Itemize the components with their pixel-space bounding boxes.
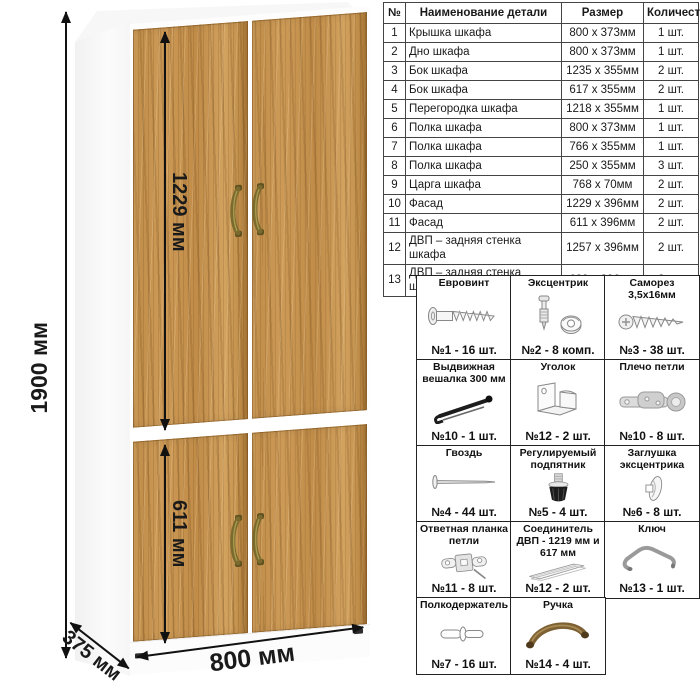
part-name: Перегородка шкафа xyxy=(406,100,562,119)
hardware-item-ugolok: Уголок №12 - 2 шт. xyxy=(510,359,606,447)
part-num: 13 xyxy=(384,264,406,296)
hardware-item-count: №1 - 16 шт. xyxy=(431,343,497,360)
hardware-item-count: №6 - 8 шт. xyxy=(623,505,682,522)
hardware-item-handle: Ручка №14 - 4 шт. xyxy=(510,597,606,675)
part-size: 800 х 373мм xyxy=(562,24,644,43)
col-header-num: № xyxy=(384,3,406,24)
hardware-item-hanger: Выдвижная вешалка 300 мм №10 - 1 шт. xyxy=(416,359,512,447)
part-name: Полка шкафа xyxy=(406,157,562,176)
hardware-item-foot: Регулируемый подпятник №5 - 4 шт. xyxy=(510,445,606,523)
hardware-item-shelf-pin: Полкодержатель №7 - 16 шт. xyxy=(416,597,512,675)
hardware-item-count: №10 - 8 шт. xyxy=(619,429,685,446)
adjustable-foot-icon xyxy=(523,472,593,505)
hardware-item-title: Эксцентрик xyxy=(527,276,589,290)
part-size: 1257 х 396мм xyxy=(562,233,644,265)
hardware-item-count: №5 - 4 шт. xyxy=(529,505,588,522)
hardware-item-count: №10 - 1 шт. xyxy=(431,429,497,446)
hardware-item-nail: Гвоздь №4 - 44 шт. xyxy=(416,445,512,523)
self-tapping-screw-icon xyxy=(617,302,687,343)
shelf-pin-icon xyxy=(431,612,497,657)
hardware-item-count: №4 - 44 шт. xyxy=(431,505,497,522)
part-name: Бок шкафа xyxy=(406,81,562,100)
hardware-item-cam-cap: Заглушка эксцентрика №6 - 8 шт. xyxy=(604,445,700,523)
door-handle-icon xyxy=(228,183,244,238)
table-row: 10Фасад1229 х 396мм2 шт. xyxy=(384,195,699,214)
col-header-name: Наименование детали xyxy=(406,3,562,24)
part-size: 1218 х 355мм xyxy=(562,100,644,119)
cam-bolt-icon xyxy=(523,290,593,343)
hinge-plate-icon xyxy=(428,548,500,581)
dimension-label-total-height: 1900 мм xyxy=(26,322,53,414)
part-num: 9 xyxy=(384,176,406,195)
hardware-item-count: №2 - 8 комп. xyxy=(521,343,594,360)
part-name: Фасад xyxy=(406,195,562,214)
part-qty: 2 шт. xyxy=(644,176,699,195)
hardware-item-hinge-plate: Ответная планка петли №11 - 8 шт. xyxy=(416,521,512,599)
wardrobe-front xyxy=(130,6,370,674)
part-qty: 3 шт. xyxy=(644,157,699,176)
hardware-item-count: №12 - 2 шт. xyxy=(525,581,591,598)
part-size: 611 х 396мм xyxy=(562,214,644,233)
table-row: 3Бок шкафа1235 х 355мм2 шт. xyxy=(384,62,699,81)
part-size: 617 х 355мм xyxy=(562,81,644,100)
part-size: 800 х 373мм xyxy=(562,43,644,62)
part-name: Дно шкафа xyxy=(406,43,562,62)
upper-right-door xyxy=(252,12,367,419)
part-num: 10 xyxy=(384,195,406,214)
wardrobe-illustration: 1900 мм 1229 мм 611 мм 800 мм 375 мм xyxy=(0,0,383,700)
hardware-item-title: Соединитель ДВП - 1219 мм и 617 мм xyxy=(511,522,605,559)
part-size: 768 х 70мм xyxy=(562,176,644,195)
hardware-item-hinge-arm: Плечо петли №10 - 8 шт. xyxy=(604,359,700,447)
part-name: Полка шкафа xyxy=(406,138,562,157)
parts-table: № Наименование детали Размер Количество … xyxy=(383,2,699,297)
furniture-handle-icon xyxy=(520,612,596,657)
wardrobe-side-panel xyxy=(75,22,130,676)
hardware-item-title: Гвоздь xyxy=(445,446,484,460)
table-row: 6Полка шкафа800 х 373мм1 шт. xyxy=(384,119,699,138)
part-size: 766 х 355мм xyxy=(562,138,644,157)
part-num: 7 xyxy=(384,138,406,157)
part-size: 800 х 373мм xyxy=(562,119,644,138)
part-qty: 1 шт. xyxy=(644,100,699,119)
table-row: 2Дно шкафа800 х 373мм1 шт. xyxy=(384,43,699,62)
hardware-item-title: Выдвижная вешалка 300 мм xyxy=(417,360,511,386)
hardware-item-count: №3 - 38 шт. xyxy=(619,343,685,360)
table-row: 7Полка шкафа766 х 355мм1 шт. xyxy=(384,138,699,157)
door-handle-icon xyxy=(250,182,266,237)
part-qty: 2 шт. xyxy=(644,195,699,214)
part-num: 1 xyxy=(384,24,406,43)
dimension-label-upper-door: 1229 мм xyxy=(167,172,190,252)
door-handle-icon xyxy=(228,513,244,568)
hardware-item-count: №11 - 8 шт. xyxy=(432,581,497,598)
hardware-item-title: Ручка xyxy=(542,598,574,612)
part-qty: 2 шт. xyxy=(644,81,699,100)
part-num: 4 xyxy=(384,81,406,100)
table-row: 12ДВП – задняя стенка шкафа1257 х 396мм2… xyxy=(384,233,699,265)
door-handle-icon xyxy=(250,512,266,567)
dimension-line-upper-door xyxy=(164,32,166,430)
col-header-qty: Количество xyxy=(644,3,699,24)
table-row: 9Царга шкафа768 х 70мм2 шт. xyxy=(384,176,699,195)
part-num: 5 xyxy=(384,100,406,119)
hardware-item-title: Полкодержатель xyxy=(419,598,509,612)
hardware-grid: Евровинт №1 - 16 шт. Эксцентрик №2 - 8 к… xyxy=(417,276,700,674)
part-num: 2 xyxy=(384,43,406,62)
hardware-item-count: №7 - 16 шт. xyxy=(431,657,497,674)
part-num: 12 xyxy=(384,233,406,265)
hex-key-icon xyxy=(616,536,688,581)
part-qty: 1 шт. xyxy=(644,119,699,138)
hardware-item-title: Евровинт xyxy=(438,276,491,290)
hardware-item-samorez: Саморез 3,5х16мм №3 - 38 шт. xyxy=(604,275,700,361)
corner-bracket-icon xyxy=(526,374,590,429)
part-qty: 2 шт. xyxy=(644,233,699,265)
part-qty: 2 шт. xyxy=(644,214,699,233)
part-name: Бок шкафа xyxy=(406,62,562,81)
part-name: Полка шкафа xyxy=(406,119,562,138)
assembly-sheet: 1900 мм 1229 мм 611 мм 800 мм 375 мм № Н… xyxy=(0,0,700,700)
hardware-item-title: Регулируемый подпятник xyxy=(511,446,605,472)
part-size: 1235 х 355мм xyxy=(562,62,644,81)
col-header-size: Размер xyxy=(562,3,644,24)
hardware-item-excentric: Эксцентрик №2 - 8 комп. xyxy=(510,275,606,361)
hardware-item-title: Уголок xyxy=(540,360,577,374)
part-qty: 1 шт. xyxy=(644,43,699,62)
part-num: 3 xyxy=(384,62,406,81)
pullout-hanger-icon xyxy=(426,386,502,429)
part-num: 8 xyxy=(384,157,406,176)
nail-icon xyxy=(428,460,500,505)
part-name: Крышка шкафа xyxy=(406,24,562,43)
dimension-line-lower-door xyxy=(164,445,166,643)
dimension-line-total-height xyxy=(65,12,67,658)
table-row: 11Фасад611 х 396мм2 шт. xyxy=(384,214,699,233)
euro-screw-icon xyxy=(426,290,502,343)
part-size: 250 х 355мм xyxy=(562,157,644,176)
parts-table-header: № Наименование детали Размер Количество xyxy=(384,3,699,24)
lower-right-door xyxy=(252,424,367,633)
part-name: Царга шкафа xyxy=(406,176,562,195)
part-num: 6 xyxy=(384,119,406,138)
hardware-item-title: Ключ xyxy=(637,522,667,536)
hardware-item-title: Ответная планка петли xyxy=(417,522,511,548)
hardware-item-hdf-connector: Соединитель ДВП - 1219 мм и 617 мм №12 -… xyxy=(510,521,606,599)
hinge-arm-icon xyxy=(614,374,690,429)
table-row: 5Перегородка шкафа1218 х 355мм1 шт. xyxy=(384,100,699,119)
table-row: 1Крышка шкафа800 х 373мм1 шт. xyxy=(384,24,699,43)
hardware-item-count: №14 - 4 шт. xyxy=(525,657,591,674)
hardware-item-key: Ключ №13 - 1 шт. xyxy=(604,521,700,599)
part-name: ДВП – задняя стенка шкафа xyxy=(406,233,562,265)
part-qty: 1 шт. xyxy=(644,24,699,43)
hardware-item-count: №13 - 1 шт. xyxy=(619,581,685,598)
hardware-item-eurovint: Евровинт №1 - 16 шт. xyxy=(416,275,512,361)
hardware-item-title: Плечо петли xyxy=(618,360,685,374)
table-row: 8Полка шкафа250 х 355мм3 шт. xyxy=(384,157,699,176)
hdf-connector-icon xyxy=(517,560,599,581)
hardware-item-count: №12 - 2 шт. xyxy=(525,429,591,446)
hardware-item-title: Саморез 3,5х16мм xyxy=(605,276,699,302)
dimension-label-lower-door: 611 мм xyxy=(167,500,190,567)
table-row: 4Бок шкафа617 х 355мм2 шт. xyxy=(384,81,699,100)
part-num: 11 xyxy=(384,214,406,233)
cam-cap-icon xyxy=(617,472,687,505)
part-size: 1229 х 396мм xyxy=(562,195,644,214)
part-qty: 2 шт. xyxy=(644,62,699,81)
part-qty: 1 шт. xyxy=(644,138,699,157)
hardware-item-title: Заглушка эксцентрика xyxy=(605,446,699,472)
part-name: Фасад xyxy=(406,214,562,233)
